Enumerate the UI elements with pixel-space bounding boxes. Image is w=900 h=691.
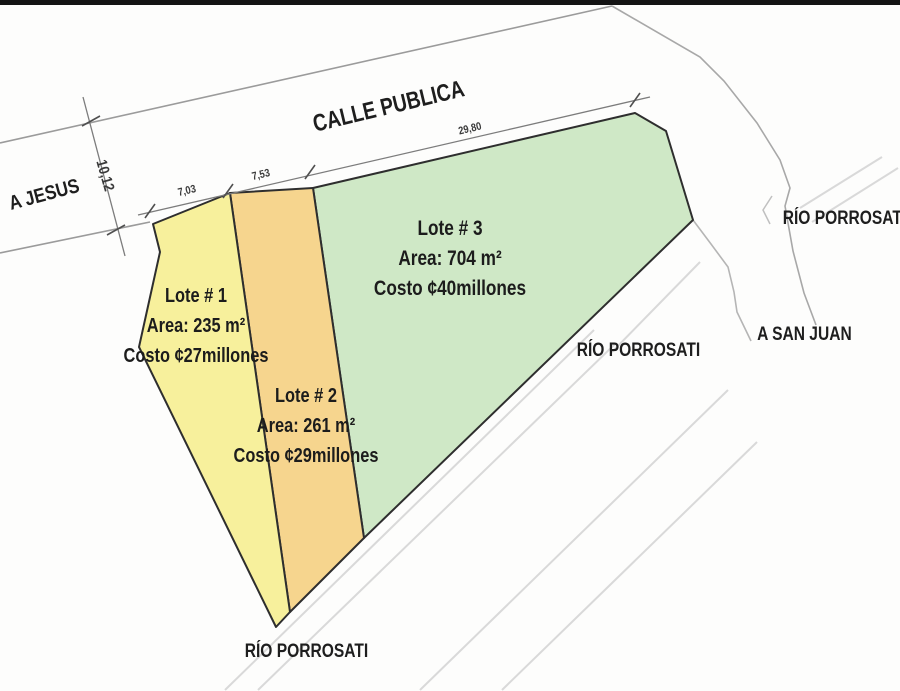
river-bank-detail [763, 196, 772, 224]
road-upper-edge [0, 6, 612, 143]
lot2-name: Lote # 2 [224, 381, 388, 411]
rio-porrosati-label-right: RÍO PORROSATI [783, 208, 890, 230]
lot1-label: Lote # 1 Area: 235 m² Costo ¢27millones [114, 281, 278, 371]
lot3-label: Lote # 3 Area: 704 m² Costo ¢40millones [368, 214, 532, 304]
a-san-juan-label: A SAN JUAN [757, 324, 849, 346]
road-lower-edge [0, 222, 150, 253]
lot3-polygon [313, 113, 693, 538]
lot3-name: Lote # 3 [368, 214, 532, 244]
lot3-area: Area: 704 m² [368, 244, 532, 274]
lot2-area: Area: 261 m² [224, 411, 388, 441]
site-plan: CALLE PUBLICA A JESUS A SAN JUAN RÍO POR… [0, 0, 900, 691]
lot3-cost: Costo ¢40millones [368, 274, 532, 304]
lot2-label: Lote # 2 Area: 261 m² Costo ¢29millones [224, 381, 388, 471]
lot1-area: Area: 235 m² [114, 311, 278, 341]
river-east-bank [693, 220, 751, 341]
rio-porrosati-label-mid: RÍO PORROSATI [577, 340, 684, 362]
lot1-cost: Costo ¢27millones [114, 341, 278, 371]
top-border-bar [0, 0, 900, 5]
lot1-name: Lote # 1 [114, 281, 278, 311]
lot2-cost: Costo ¢29millones [224, 441, 388, 471]
rio-porrosati-label-bottom: RÍO PORROSATI [245, 641, 352, 663]
